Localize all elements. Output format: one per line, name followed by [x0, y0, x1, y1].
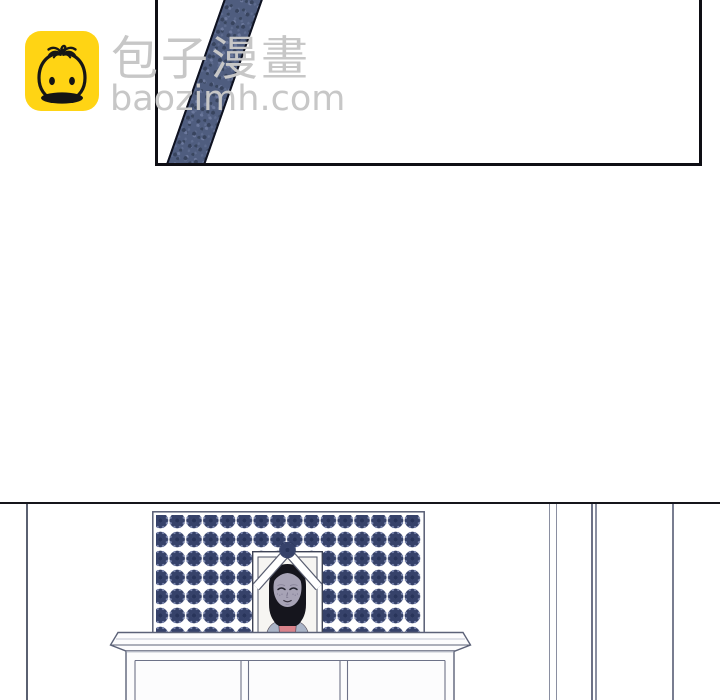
cabinet-body: [126, 651, 454, 700]
comic-page: 包子漫畫 baozimh.com: [0, 0, 720, 700]
cabinet-cornice: [111, 633, 471, 652]
wall-line: [556, 504, 557, 700]
watermark-domain-text: baozimh.com: [110, 82, 345, 117]
ribbon-rosette: [280, 542, 296, 558]
panel-divider-line: [0, 502, 720, 505]
watermark-brand-text: 包子漫畫: [111, 36, 311, 83]
wall-line: [549, 504, 550, 700]
door-frame-line: [591, 504, 593, 700]
wall-edge-line-left: [26, 504, 28, 700]
baozi-bun-icon: [25, 31, 99, 111]
wall-line: [672, 504, 674, 700]
altar-cabinet: [100, 625, 480, 700]
door-frame-line: [595, 504, 596, 700]
